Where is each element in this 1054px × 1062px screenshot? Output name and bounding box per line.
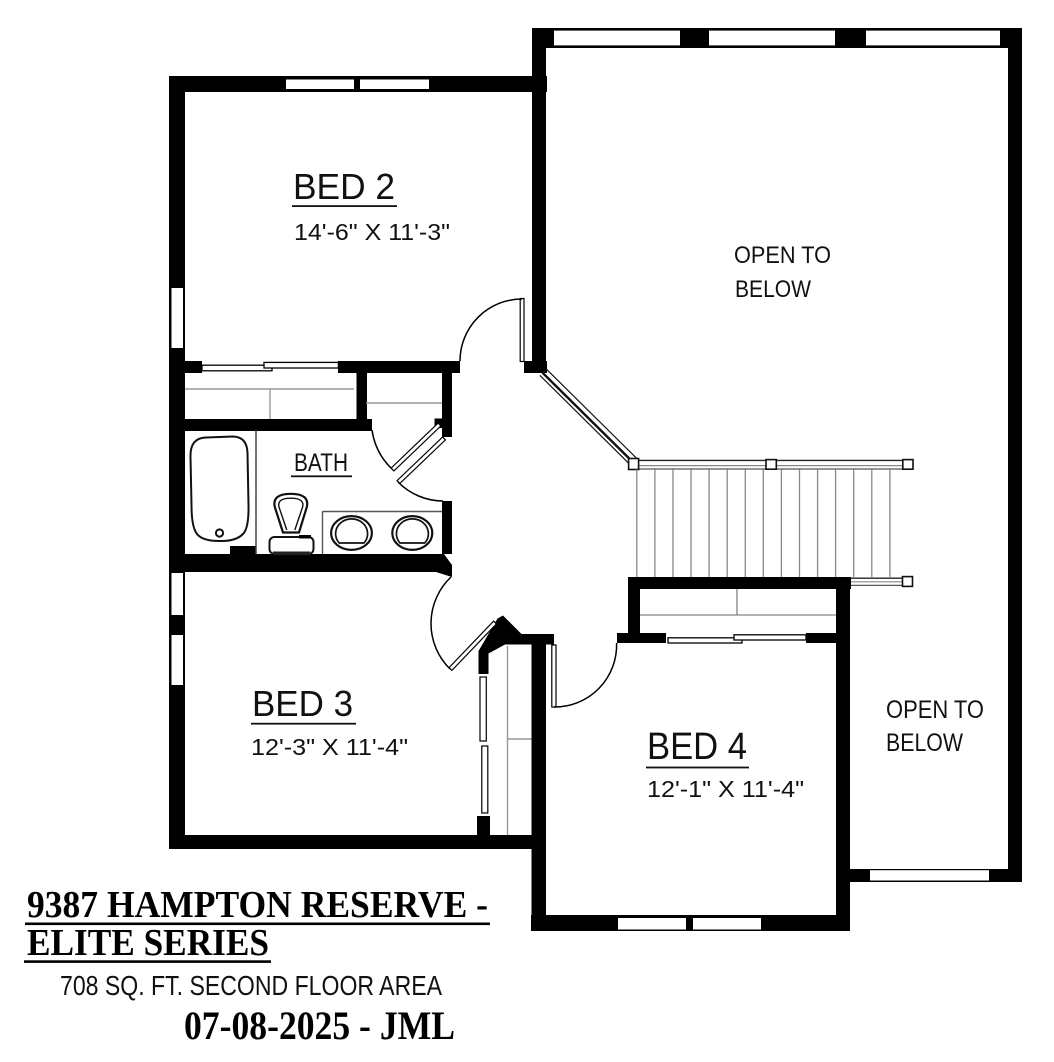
svg-text:07-08-2025 - JML: 07-08-2025 - JML bbox=[184, 1003, 455, 1048]
svg-text:12'-3" X 11'-4": 12'-3" X 11'-4" bbox=[251, 734, 408, 760]
svg-text:BED 4: BED 4 bbox=[647, 726, 747, 768]
svg-text:OPEN TO: OPEN TO bbox=[734, 242, 831, 269]
svg-text:BED 2: BED 2 bbox=[293, 166, 395, 207]
svg-text:9387 HAMPTON RESERVE -: 9387 HAMPTON RESERVE - bbox=[27, 884, 488, 926]
svg-text:BELOW: BELOW bbox=[735, 276, 811, 303]
svg-text:BELOW: BELOW bbox=[886, 729, 963, 757]
svg-text:OPEN TO: OPEN TO bbox=[886, 696, 984, 724]
svg-text:14'-6" X 11'-3": 14'-6" X 11'-3" bbox=[294, 219, 450, 245]
svg-text:ELITE SERIES: ELITE SERIES bbox=[27, 922, 269, 964]
svg-text:BED 3: BED 3 bbox=[252, 683, 353, 724]
svg-text:708 SQ. FT. SECOND FLOOR AREA: 708 SQ. FT. SECOND FLOOR AREA bbox=[60, 970, 442, 1001]
svg-text:12'-1" X 11'-4": 12'-1" X 11'-4" bbox=[647, 776, 804, 802]
svg-text:BATH: BATH bbox=[294, 449, 348, 477]
